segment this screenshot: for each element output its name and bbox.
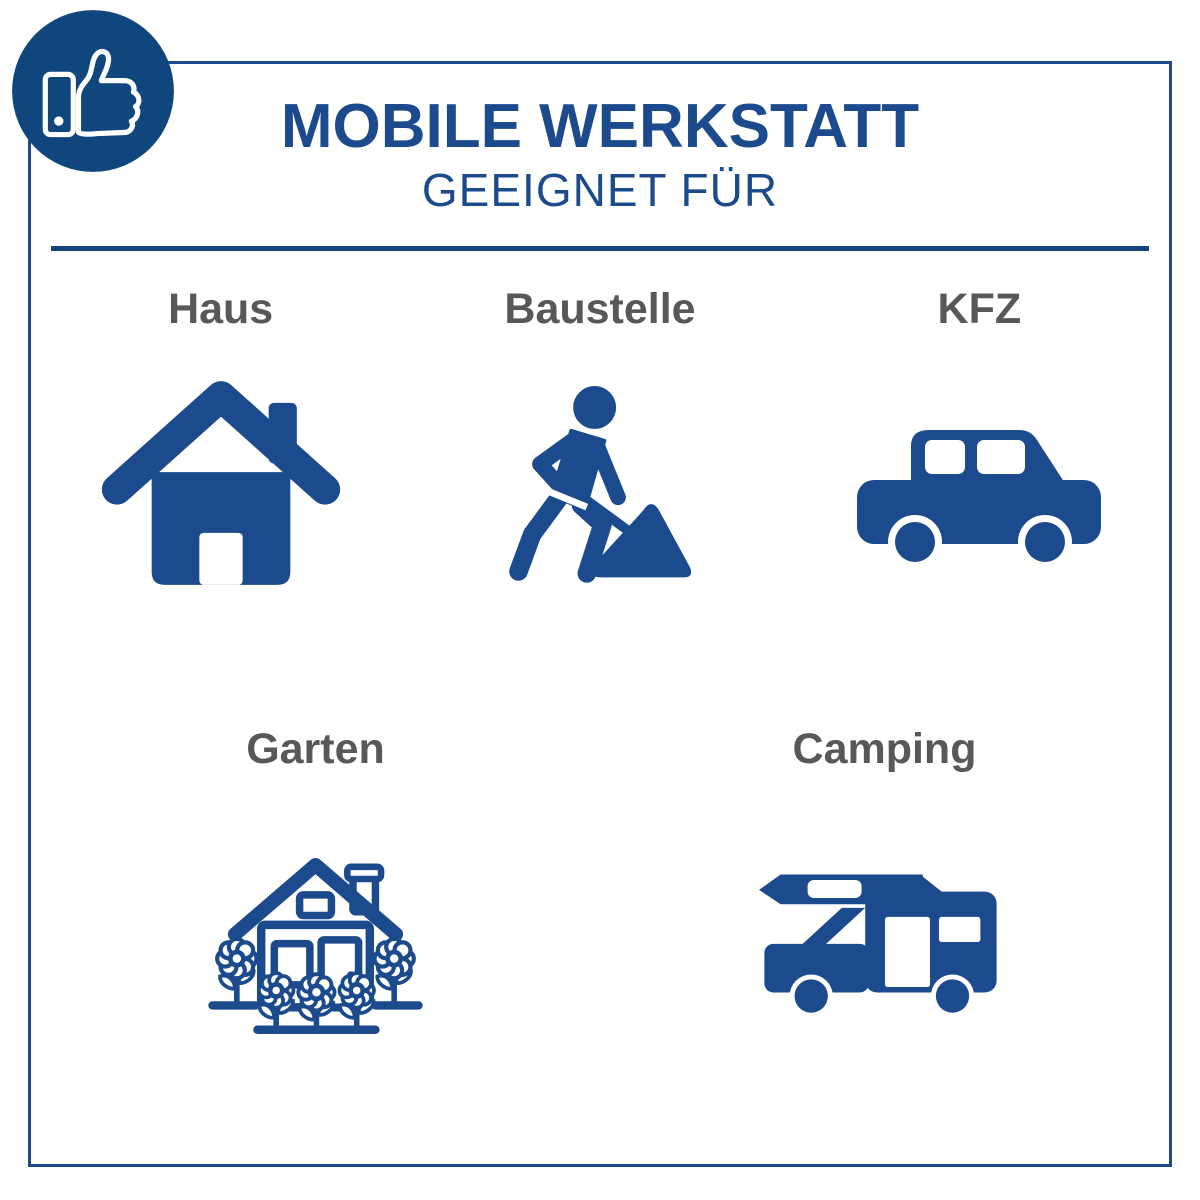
infographic-canvas: MOBILE WERKSTATT GEEIGNET FÜR Haus — [0, 0, 1200, 1200]
category-kfz: KFZ — [790, 283, 1169, 635]
page-subtitle: GEEIGNET FÜR — [31, 162, 1169, 218]
car-icon — [849, 404, 1109, 574]
category-garten: Garten — [31, 723, 600, 1093]
category-row-2: Garten — [31, 723, 1169, 1093]
page-title: MOBILE WERKSTATT — [31, 92, 1169, 162]
category-haus: Haus — [31, 283, 410, 635]
category-label: KFZ — [938, 283, 1022, 335]
camper-van-icon — [750, 850, 1020, 1026]
thumbs-up-icon — [10, 8, 176, 174]
house-icon — [91, 381, 351, 598]
category-label: Haus — [168, 283, 273, 335]
category-label: Camping — [793, 723, 977, 775]
construction-worker-icon — [497, 382, 702, 597]
category-camping: Camping — [600, 723, 1169, 1093]
category-baustelle: Baustelle — [410, 283, 789, 635]
content-card: MOBILE WERKSTATT GEEIGNET FÜR Haus — [28, 61, 1172, 1167]
category-row-1: Haus Baustelle — [31, 283, 1169, 635]
title-divider — [51, 246, 1149, 251]
category-label: Baustelle — [504, 283, 695, 335]
header: MOBILE WERKSTATT GEEIGNET FÜR — [31, 92, 1169, 218]
garden-house-icon — [203, 835, 428, 1041]
thumbs-up-badge — [10, 8, 176, 174]
category-label: Garten — [246, 723, 385, 775]
